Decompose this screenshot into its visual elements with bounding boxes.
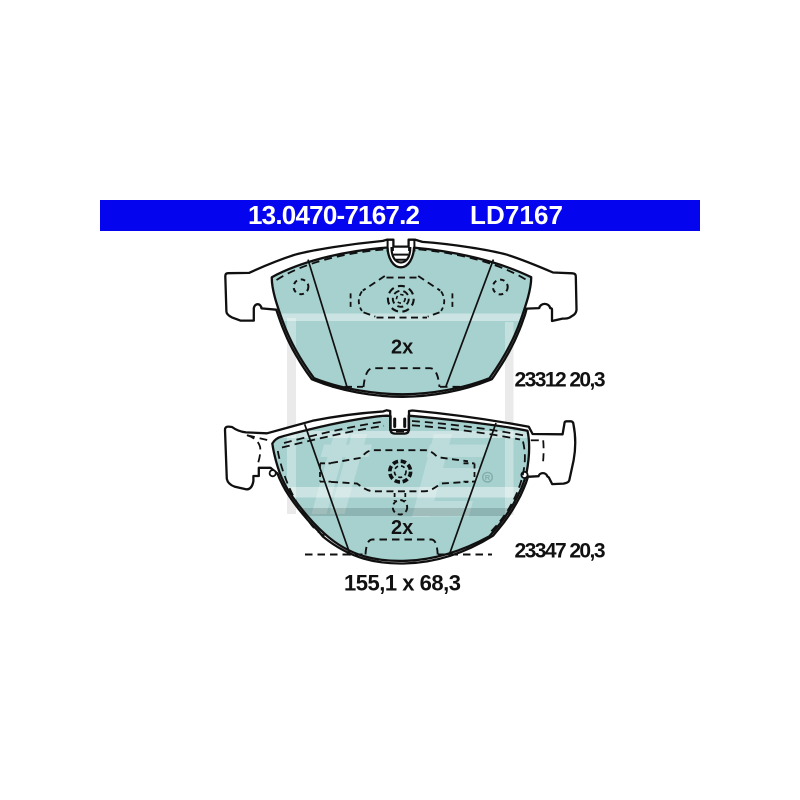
svg-text:R: R (485, 473, 491, 482)
svg-text:23312 20,3: 23312 20,3 (515, 368, 606, 391)
svg-text:13.0470-7167.2: 13.0470-7167.2 (248, 200, 420, 230)
svg-text:2x: 2x (391, 517, 413, 539)
svg-text:155,1 x 68,3: 155,1 x 68,3 (344, 570, 461, 595)
svg-text:LD7167: LD7167 (470, 200, 563, 230)
svg-text:23347 20,3: 23347 20,3 (515, 540, 606, 563)
svg-text:2x: 2x (391, 336, 413, 358)
